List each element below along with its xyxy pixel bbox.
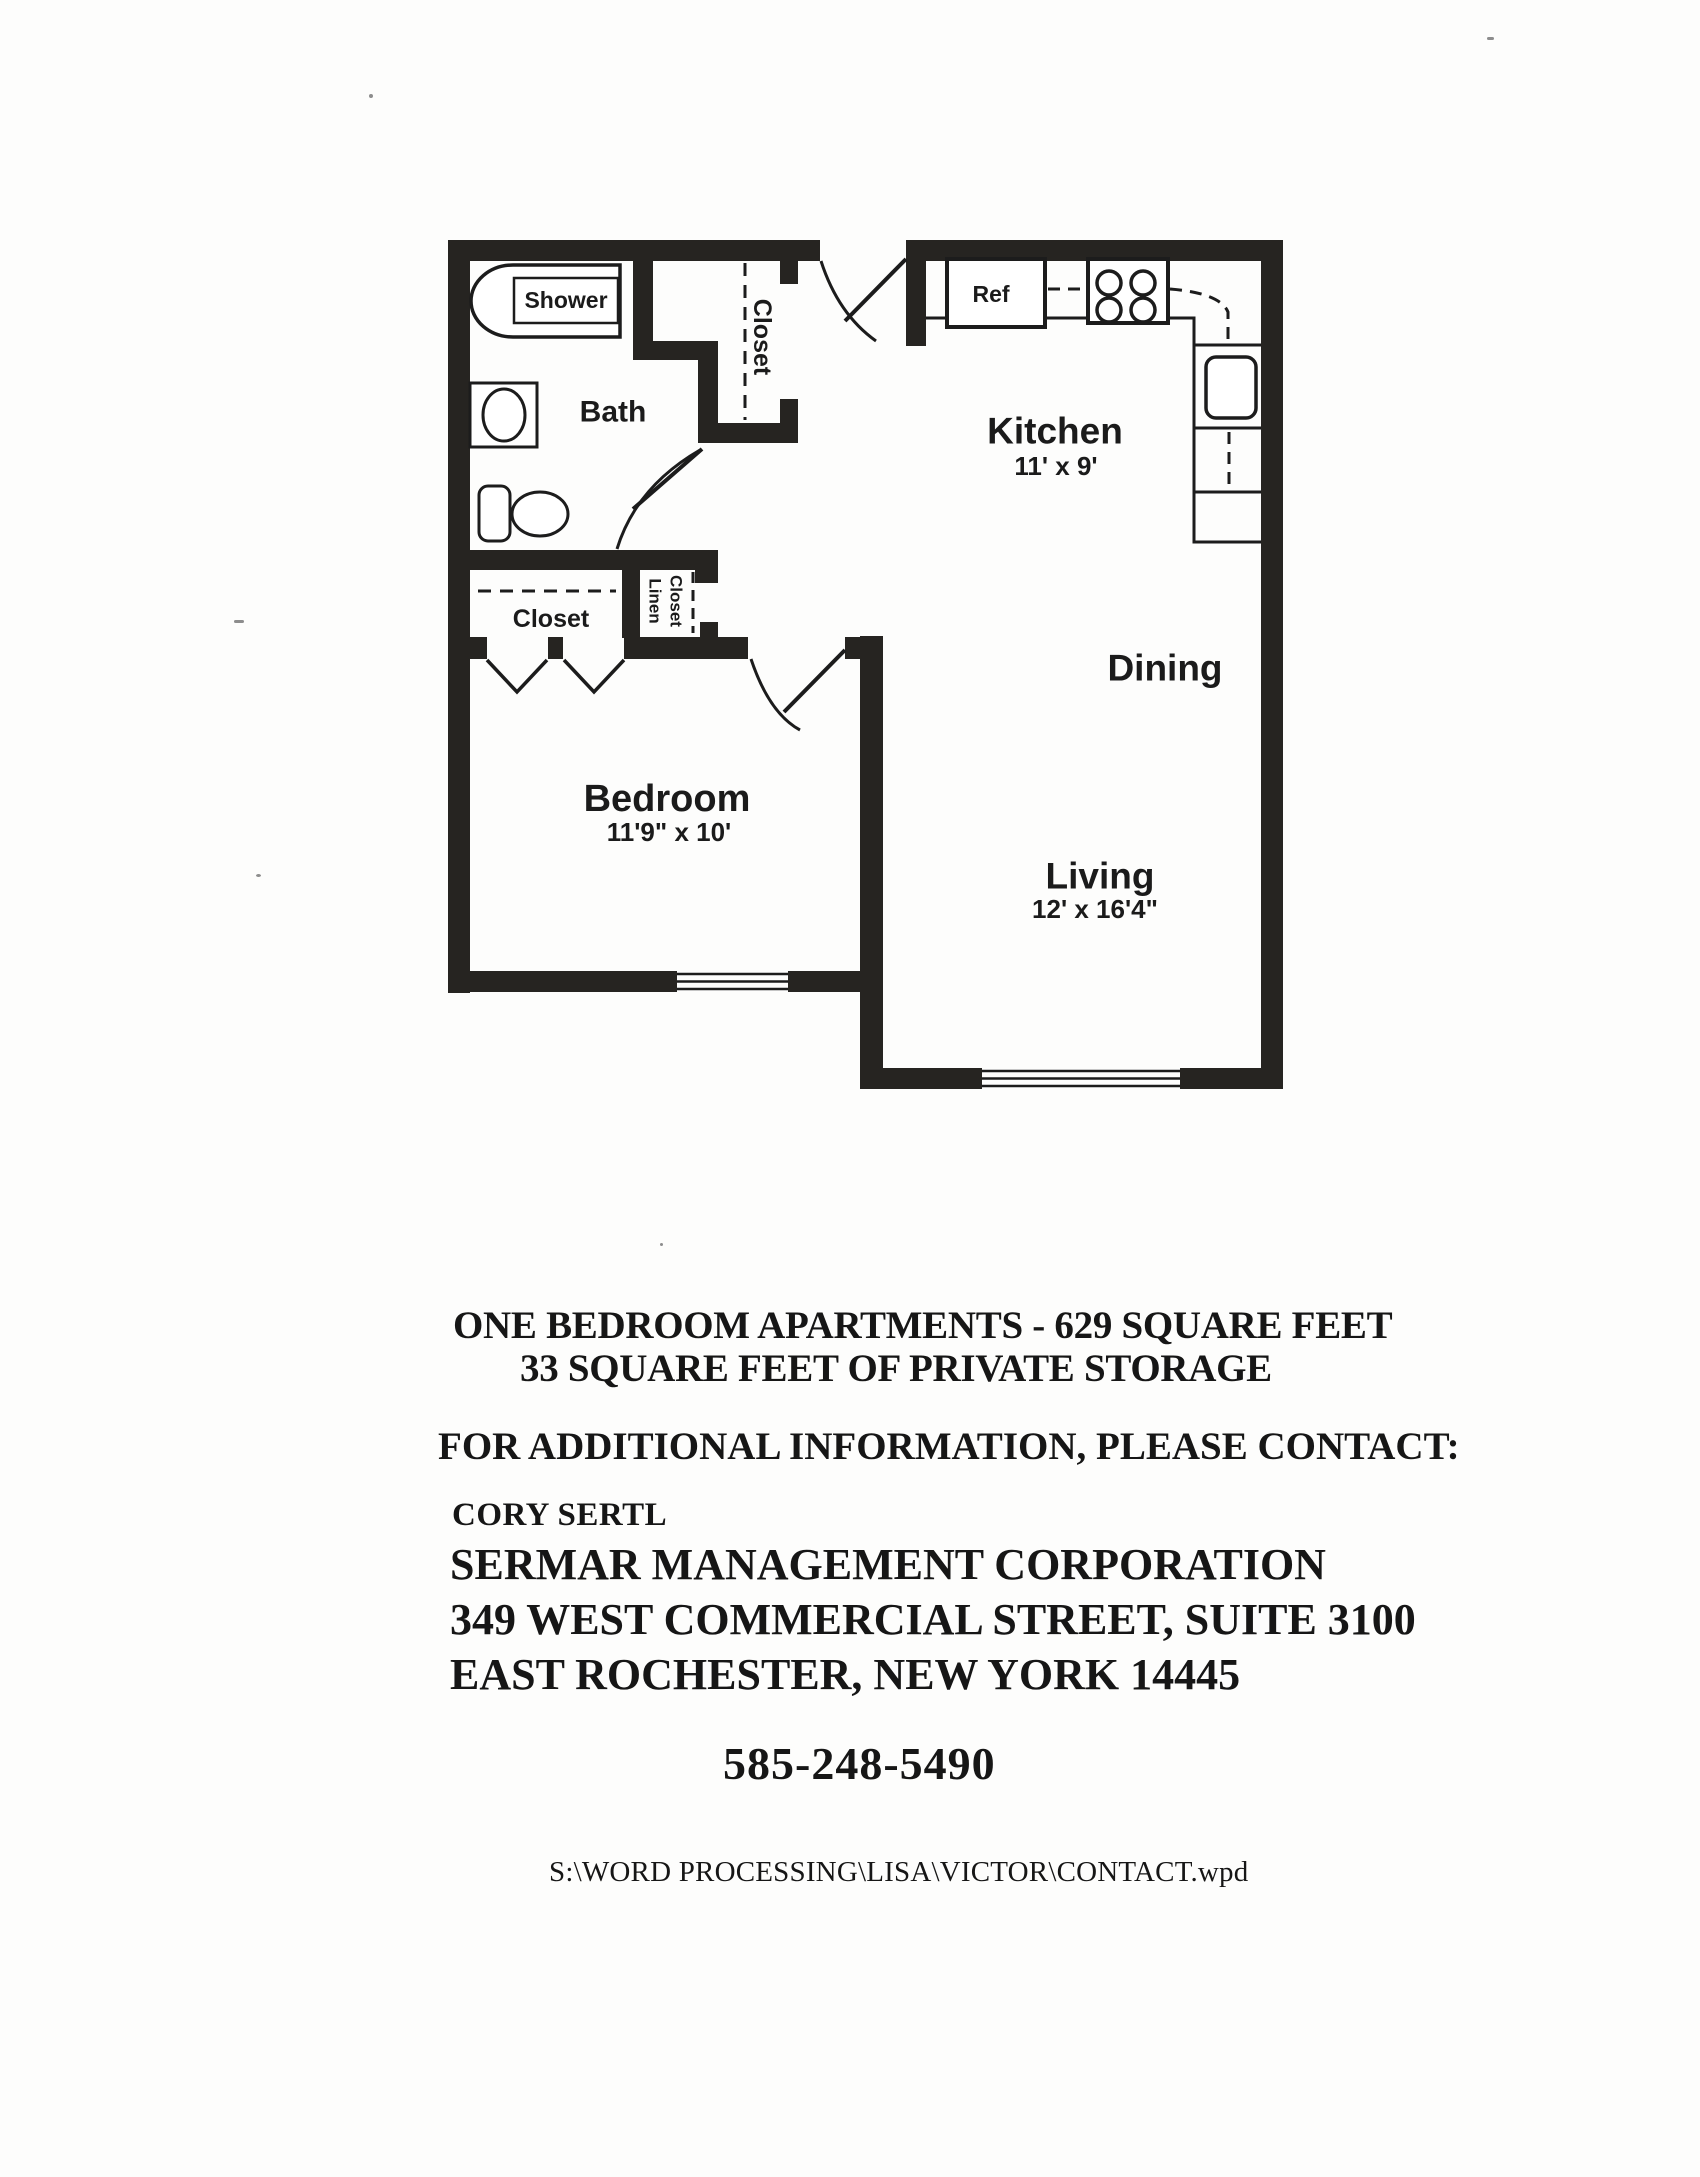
wall-linen-stub-bottom	[700, 622, 718, 638]
scan-speck	[1487, 37, 1494, 40]
address-line-1: 349 WEST COMMERCIAL STREET, SUITE 3100	[450, 1594, 1416, 1645]
wall-bath-south	[448, 550, 718, 570]
contact-name: CORY SERTL	[452, 1497, 667, 1534]
contact-intro-line: FOR ADDITIONAL INFORMATION, PLEASE CONTA…	[438, 1424, 1460, 1469]
room-dims-living: 12' x 16'4"	[1032, 894, 1158, 924]
toilet-tank	[479, 486, 510, 541]
living-window	[982, 1071, 1180, 1086]
room-label-dining: Dining	[1107, 648, 1222, 689]
room-dims-bedroom: 11'9" x 10'	[607, 817, 731, 847]
ref-label: Ref	[972, 281, 1009, 307]
file-path: S:\WORD PROCESSING\LISA\VICTOR\CONTACT.w…	[549, 1856, 1248, 1889]
wall-linen-stub-top	[695, 570, 718, 583]
scan-speck	[234, 620, 244, 623]
summary-line-1: ONE BEDROOM APARTMENTS - 629 SQUARE FEET	[453, 1303, 1392, 1348]
room-label-closet-bedroom: Closet	[513, 605, 590, 633]
wall-closet-stub-bottom	[780, 399, 798, 425]
wall-kitchen-west	[906, 240, 926, 346]
wall-bedroom-north-2	[624, 637, 748, 659]
bedroom-door	[751, 650, 845, 730]
scanned-document-page: Shower Bath Closet Ref Kitchen 11' x 9' …	[0, 0, 1700, 2177]
scan-speck	[660, 1243, 663, 1246]
bedroom-window	[677, 974, 788, 989]
wall-right	[1261, 240, 1283, 1089]
wall-closet-bottom	[698, 423, 798, 443]
wall-living-bottom-right	[1180, 1068, 1283, 1089]
room-label-shower: Shower	[524, 287, 607, 313]
summary-line-2: 33 SQUARE FEET OF PRIVATE STORAGE	[520, 1346, 1272, 1391]
wall-bedroom-north-stub	[548, 637, 563, 659]
room-dims-kitchen: 11' x 9'	[1014, 451, 1097, 481]
wall-top-left	[448, 240, 820, 261]
room-label-bedroom: Bedroom	[584, 778, 751, 820]
room-label-kitchen: Kitchen	[987, 411, 1123, 452]
kitchen-sink	[1206, 357, 1256, 418]
toilet-bowl	[512, 492, 568, 536]
linen-closet-label-line1: Linen	[646, 578, 665, 623]
wall-bedroom-door-stub	[845, 637, 883, 659]
scan-speck	[256, 874, 261, 877]
bedroom-closet-bifold-doors	[487, 660, 624, 692]
wall-left	[448, 240, 470, 993]
room-label-closet-entry: Closet	[748, 299, 776, 376]
floor-plan: Shower Bath Closet Ref Kitchen 11' x 9' …	[0, 0, 1700, 2177]
bath-door	[617, 449, 702, 549]
wall-bedroom-bottom-left	[448, 971, 677, 992]
scan-speck	[369, 94, 373, 98]
company-name: SERMAR MANAGEMENT CORPORATION	[450, 1539, 1326, 1590]
address-line-2: EAST ROCHESTER, NEW YORK 14445	[450, 1649, 1240, 1700]
room-label-living: Living	[1046, 856, 1155, 897]
wall-bedroom-north-1	[448, 637, 487, 659]
phone-number: 585-248-5490	[723, 1737, 996, 1790]
wall-linen-west	[622, 550, 640, 638]
bath-sink-basin	[483, 389, 525, 441]
wall-living-west	[860, 636, 883, 1089]
room-label-bath: Bath	[580, 396, 647, 429]
linen-closet-label-line2: Closet	[667, 575, 686, 627]
entry-door	[821, 259, 906, 341]
wall-closet-stub-top	[780, 261, 798, 284]
